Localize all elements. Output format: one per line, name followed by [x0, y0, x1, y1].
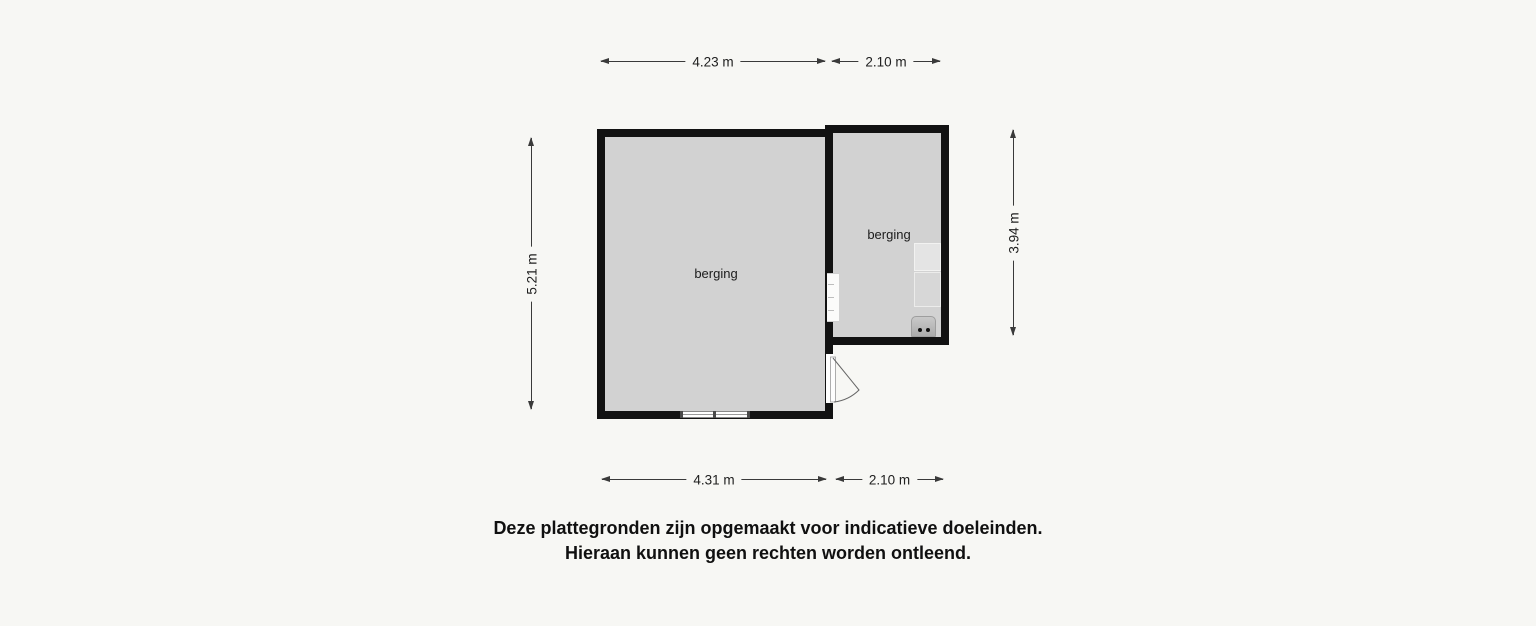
dimension-label: 5.21 m — [525, 246, 540, 301]
dimension-label: 2.10 m — [862, 473, 917, 488]
arrow-up-icon — [528, 137, 534, 146]
door-jamb-mark — [828, 310, 834, 311]
door-jamb-mark — [828, 284, 834, 285]
appliance-knob — [926, 328, 930, 332]
window-divider — [680, 411, 683, 418]
disclaimer-text: Deze plattegronden zijn opgemaakt voor i… — [0, 516, 1536, 566]
interior-door-opening — [827, 273, 839, 322]
arrow-up-icon — [1010, 129, 1016, 138]
floor-plan: berging berging 4.23 m 2.10 m 4.31 m 2.1… — [0, 0, 1536, 626]
dimension-label: 3.94 m — [1007, 205, 1022, 260]
arrow-left-icon — [600, 58, 609, 64]
arrow-left-icon — [831, 58, 840, 64]
arrow-left-icon — [601, 476, 610, 482]
dimension-bottom-left: 4.31 m — [601, 473, 827, 487]
arrow-left-icon — [835, 476, 844, 482]
dimension-left: 5.21 m — [525, 137, 539, 410]
dimension-top-left: 4.23 m — [600, 55, 826, 69]
arrow-down-icon — [528, 401, 534, 410]
dimension-label: 4.23 m — [685, 55, 740, 70]
door-jamb-mark — [828, 297, 834, 298]
dimension-top-right: 2.10 m — [831, 55, 941, 69]
dimension-right: 3.94 m — [1007, 129, 1021, 336]
counter-fixture — [914, 243, 941, 271]
arrow-right-icon — [932, 58, 941, 64]
counter-fixture — [914, 272, 941, 307]
window-divider — [713, 411, 716, 418]
arrow-down-icon — [1010, 327, 1016, 336]
window-divider — [747, 411, 750, 418]
arrow-right-icon — [818, 476, 827, 482]
door-swing-icon — [824, 352, 864, 408]
appliance-icon — [911, 316, 936, 337]
arrow-right-icon — [817, 58, 826, 64]
arrow-right-icon — [935, 476, 944, 482]
disclaimer-line-1: Deze plattegronden zijn opgemaakt voor i… — [0, 516, 1536, 541]
dimension-bottom-right: 2.10 m — [835, 473, 944, 487]
room-label-berging-left: berging — [616, 267, 816, 281]
disclaimer-line-2: Hieraan kunnen geen rechten worden ontle… — [0, 541, 1536, 566]
dimension-label: 2.10 m — [858, 55, 913, 70]
room-label-berging-right: berging — [834, 228, 944, 242]
window-icon — [680, 411, 750, 418]
appliance-knob — [918, 328, 922, 332]
dimension-label: 4.31 m — [686, 473, 741, 488]
